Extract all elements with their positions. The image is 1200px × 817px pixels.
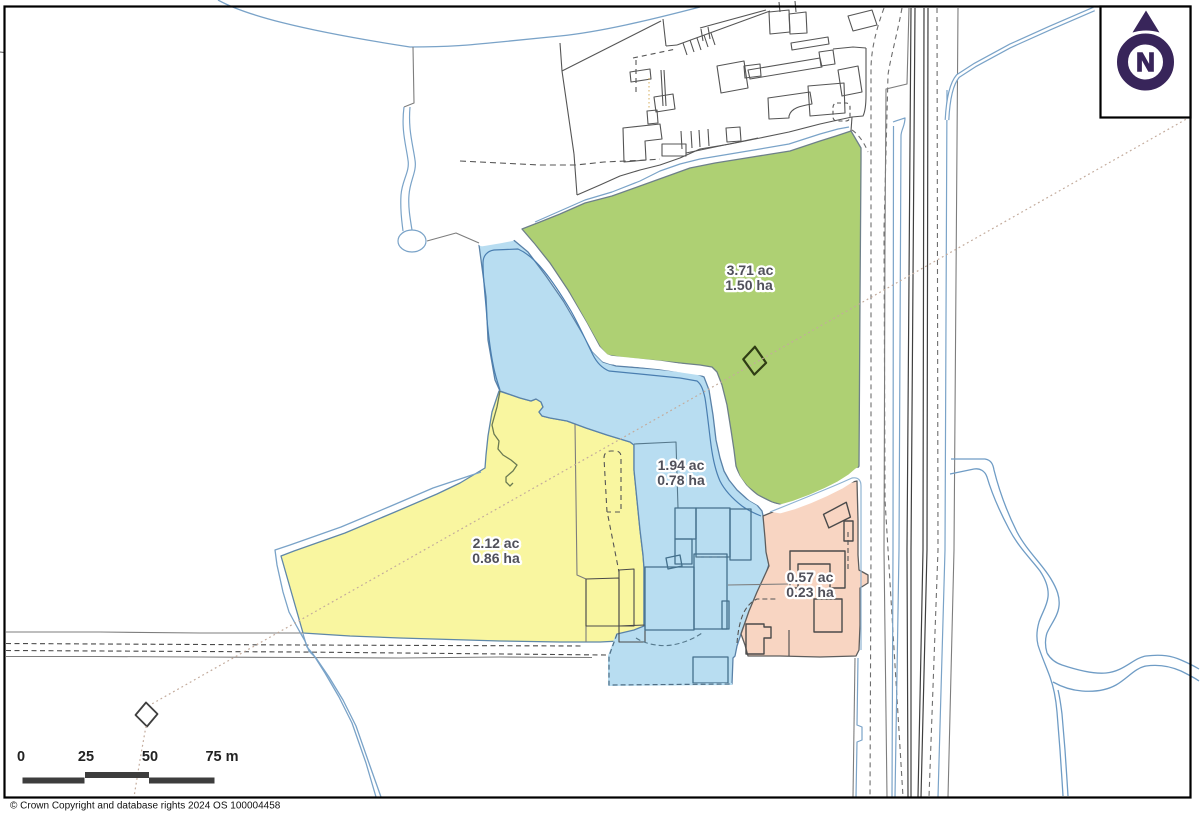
svg-text:N: N <box>1136 47 1155 77</box>
svg-text:0: 0 <box>17 749 25 765</box>
svg-text:© Crown Copyright and database: © Crown Copyright and database rights 20… <box>10 801 281 812</box>
svg-text:50: 50 <box>142 749 158 765</box>
svg-text:1.94 ac: 1.94 ac <box>658 457 705 473</box>
svg-text:75 m: 75 m <box>205 749 238 765</box>
svg-text:3.71 ac: 3.71 ac <box>727 262 774 278</box>
svg-text:2.12 ac: 2.12 ac <box>473 535 520 551</box>
svg-text:0.78 ha: 0.78 ha <box>657 472 705 488</box>
svg-text:0.86 ha: 0.86 ha <box>472 550 520 566</box>
svg-text:0.57 ac: 0.57 ac <box>787 569 834 585</box>
svg-text:25: 25 <box>78 749 94 765</box>
svg-text:0.23 ha: 0.23 ha <box>786 584 834 600</box>
svg-text:1.50 ha: 1.50 ha <box>725 277 773 293</box>
